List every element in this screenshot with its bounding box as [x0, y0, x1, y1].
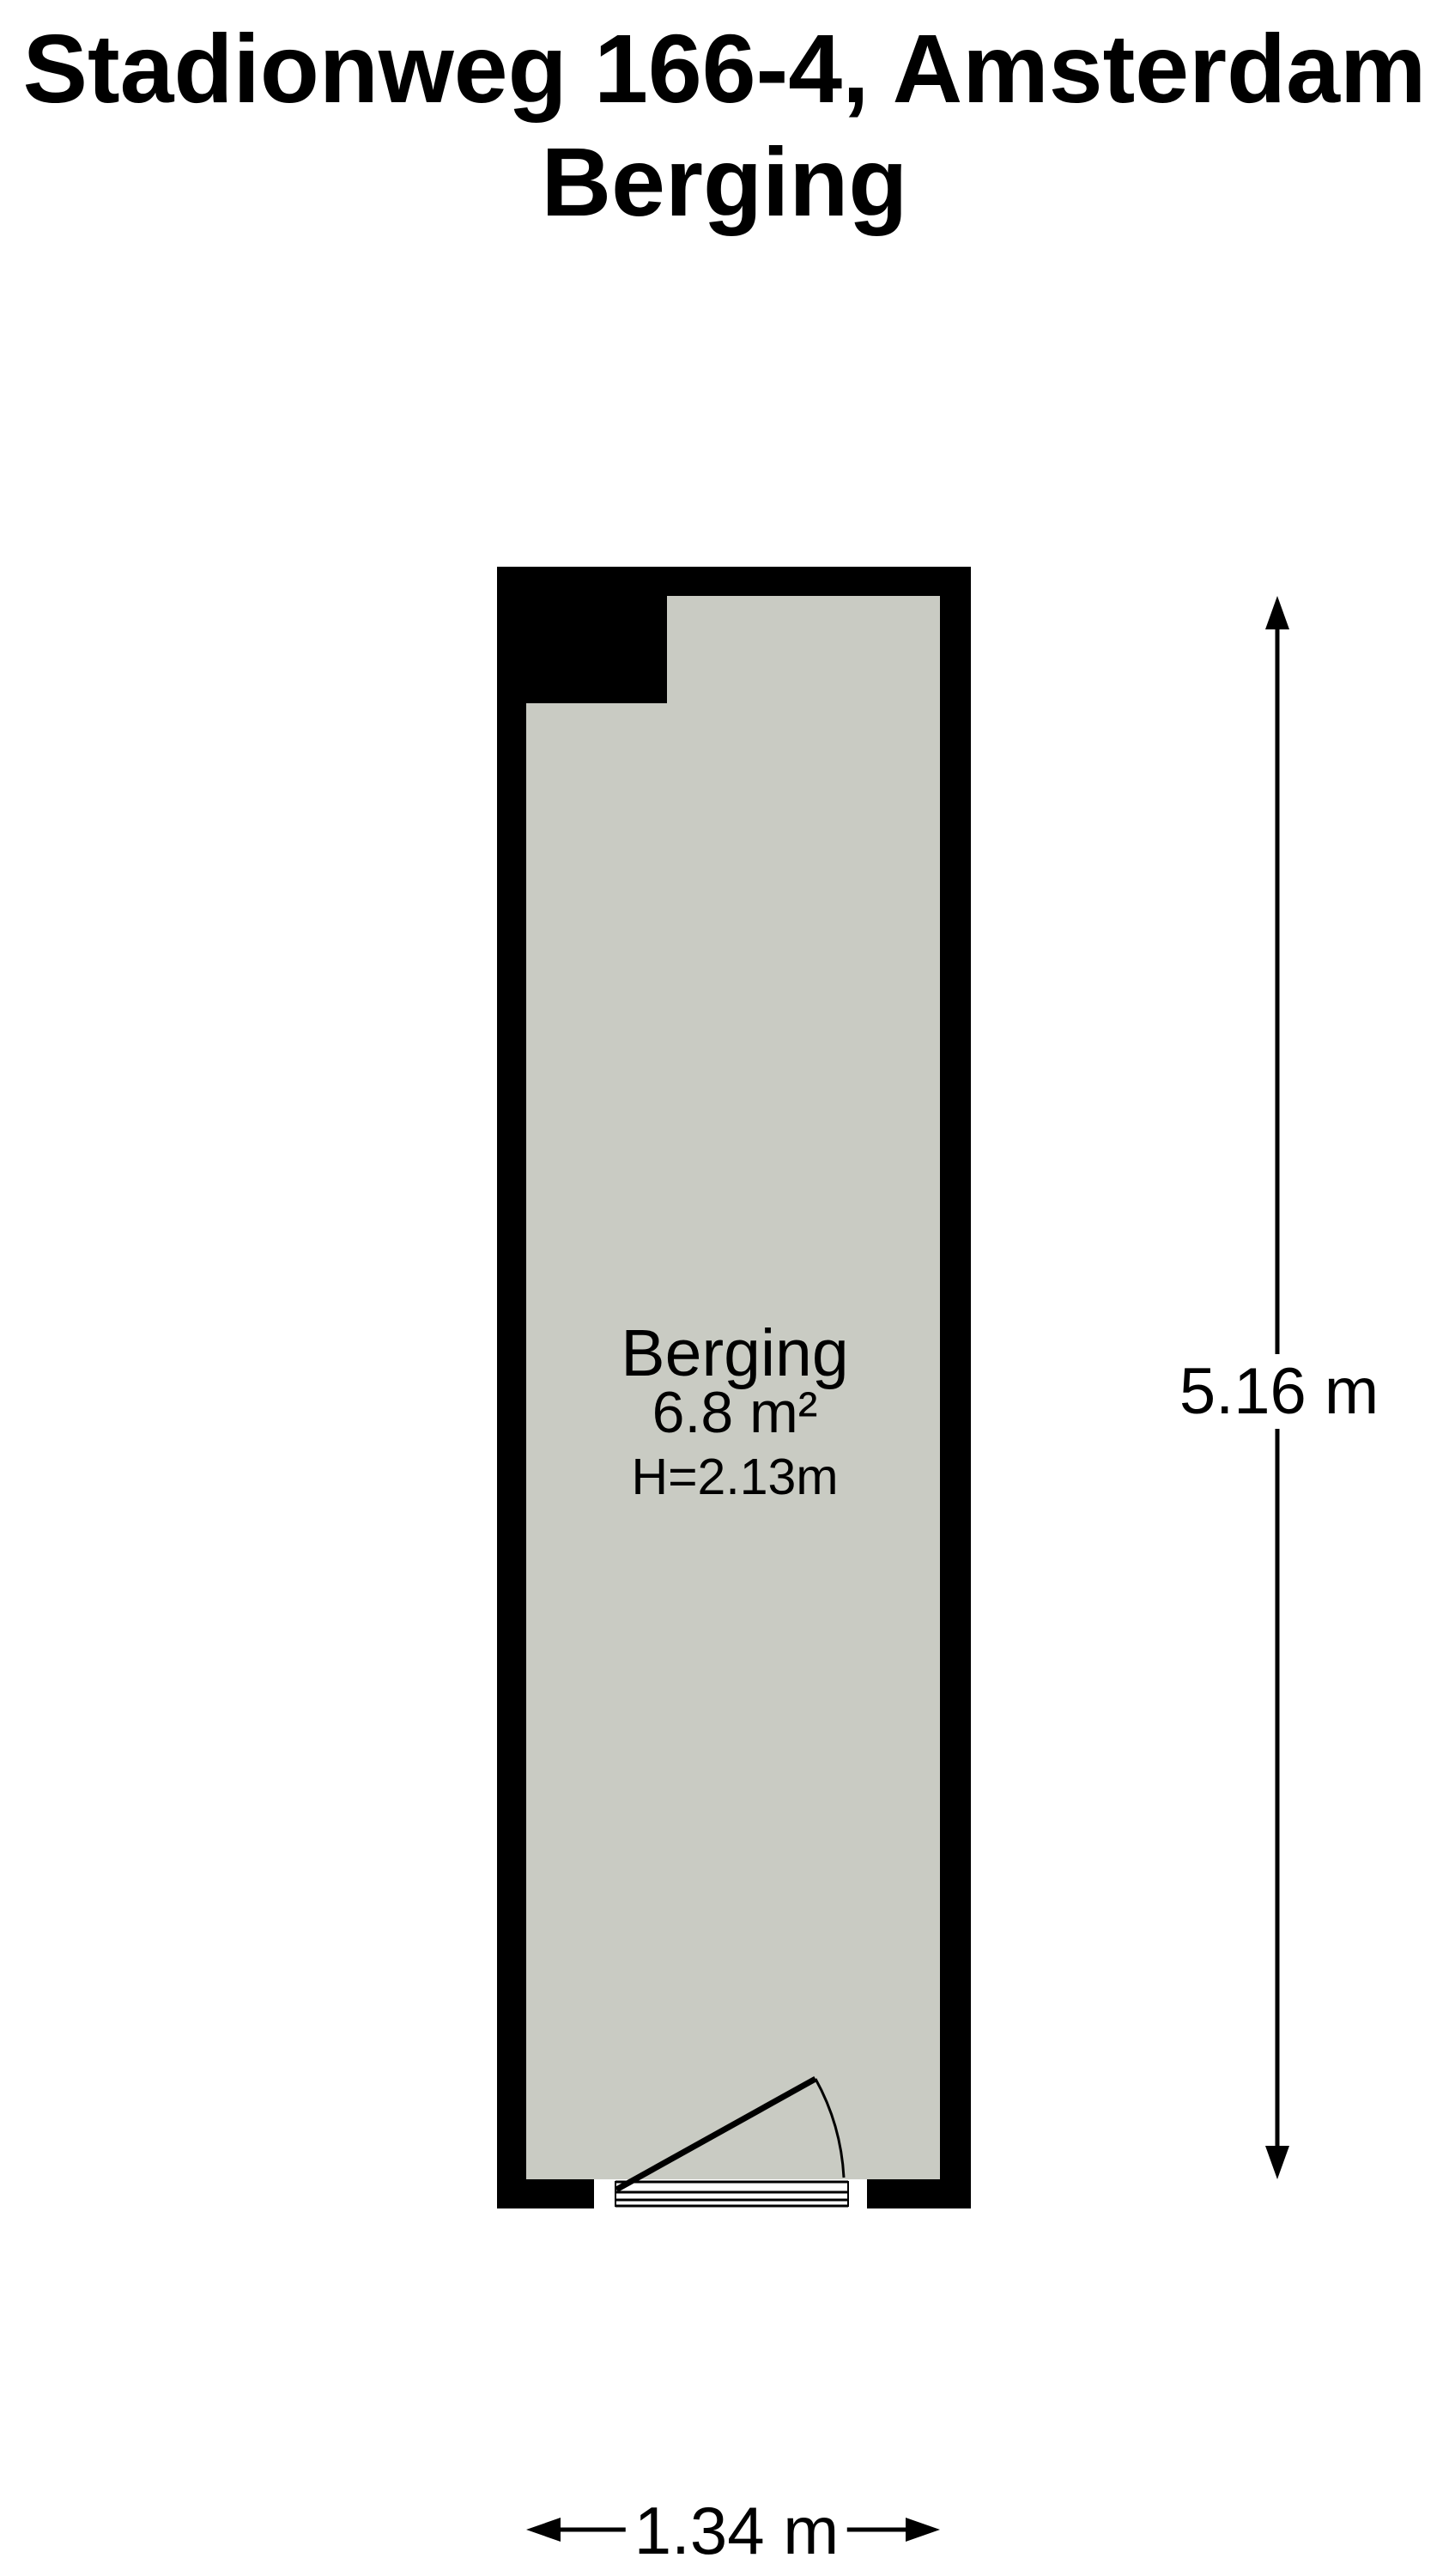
height-dimension-label: 5.16 m [1173, 1354, 1385, 1429]
floorplan [0, 0, 1449, 2576]
room-ceiling-height-label: H=2.13m [631, 1449, 838, 1507]
room-area-label: 6.8 m² [652, 1379, 818, 1446]
width-dimension-label: 1.34 m [626, 2493, 847, 2570]
door-opening [594, 2179, 867, 2208]
